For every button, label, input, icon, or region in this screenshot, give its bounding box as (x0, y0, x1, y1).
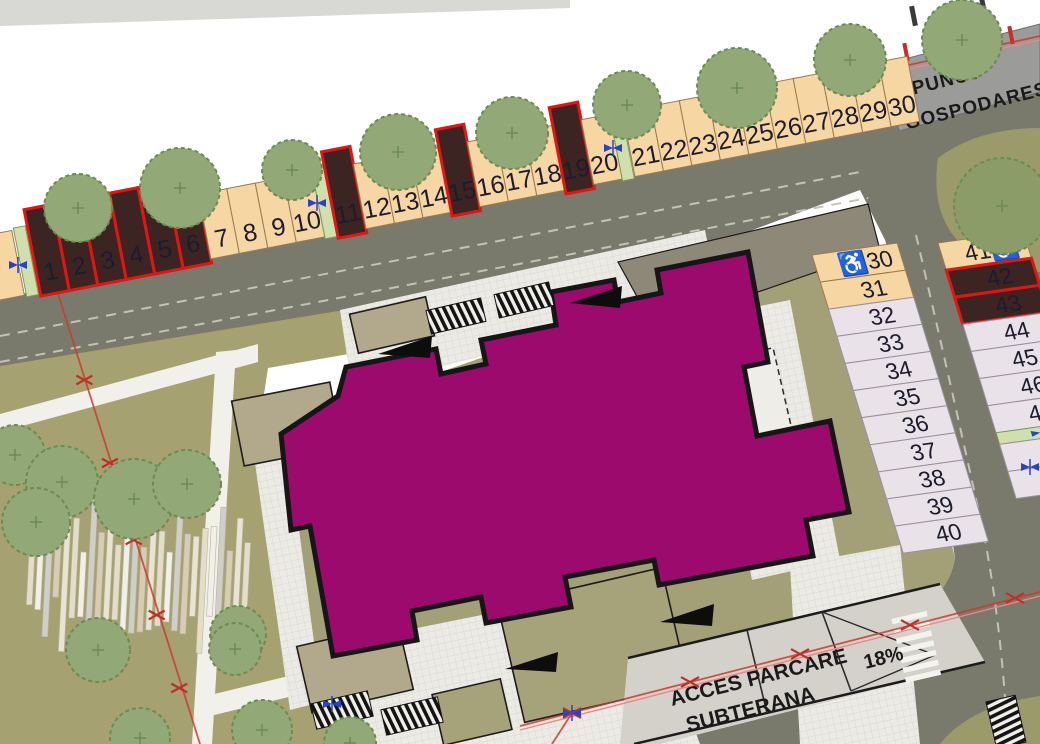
parking-space-number: 10 (291, 206, 324, 239)
parking-space-number: 23 (686, 129, 719, 162)
site-plan-canvas: ACCES PARCARE SUBTERANA 18% PUNCT GOSPOD… (0, 0, 1040, 744)
parking-space-number: 15 (446, 175, 479, 208)
parking-space-number: 16 (474, 170, 507, 203)
parking-space-number: 21 (629, 140, 662, 173)
parking-space-number: 12 (360, 192, 393, 225)
site-plan: ACCES PARCARE SUBTERANA 18% PUNCT GOSPOD… (0, 0, 1040, 744)
parking-space-number: 29 (857, 95, 890, 128)
parking-space-number: 30 (886, 90, 919, 123)
parking-space-number: 27 (800, 107, 833, 140)
parking-space-number: 26 (772, 112, 805, 145)
parking-space-number: 11 (333, 198, 364, 230)
parking-space-number: 19 (560, 153, 593, 186)
parking-space-number: 28 (829, 101, 862, 134)
parking-space-number: 22 (658, 134, 691, 167)
parking-space-number: 20 (588, 148, 621, 181)
parking-space-number: 13 (389, 186, 422, 219)
